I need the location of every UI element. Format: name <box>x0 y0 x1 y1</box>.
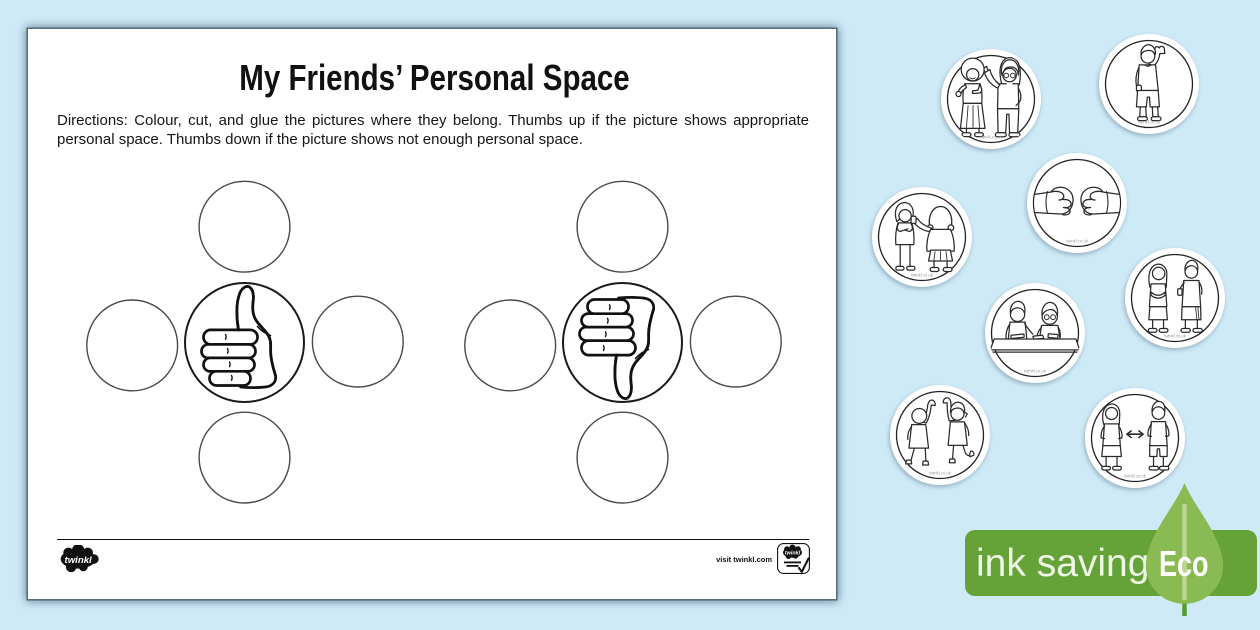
svg-text:twinkl: twinkl <box>65 555 93 566</box>
svg-text:twinkl.co.uk: twinkl.co.uk <box>1138 120 1161 125</box>
svg-text:twinkl.co.uk: twinkl.co.uk <box>929 471 952 476</box>
svg-text:twinkl.co.uk: twinkl.co.uk <box>1164 334 1187 339</box>
svg-text:twinkl.co.uk: twinkl.co.uk <box>980 135 1003 140</box>
svg-text:twinkl.co.uk: twinkl.co.uk <box>911 273 934 278</box>
svg-text:twinkl.co.uk: twinkl.co.uk <box>1124 474 1147 479</box>
svg-text:twinkl.co.uk: twinkl.co.uk <box>1066 239 1089 244</box>
svg-text:twinkl.co.uk: twinkl.co.uk <box>1024 369 1047 374</box>
svg-text:twinkl: twinkl <box>785 551 801 557</box>
